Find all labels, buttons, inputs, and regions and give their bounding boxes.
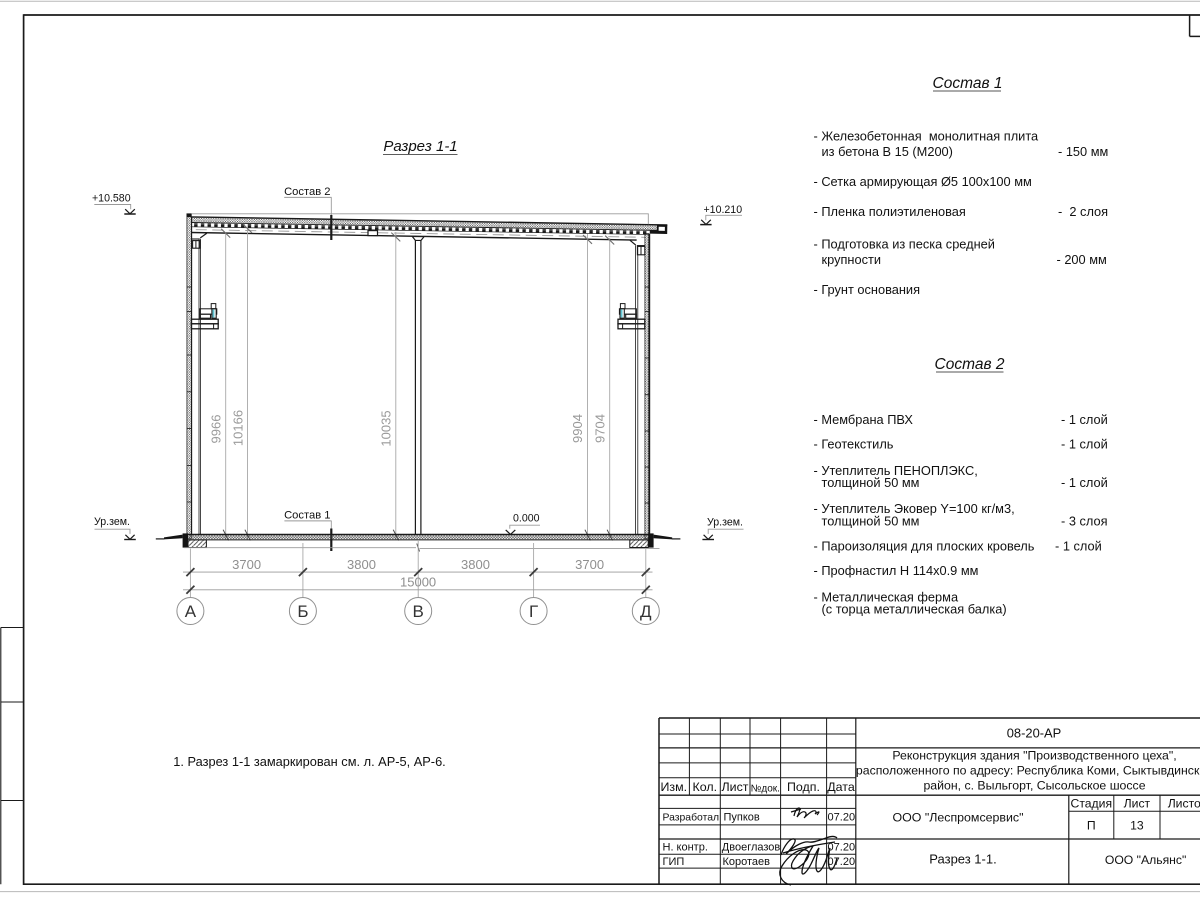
svg-text:+10.210: +10.210 [704, 204, 743, 216]
svg-text:- 1 слой: - 1 слой [1061, 475, 1108, 490]
svg-text:Н. контр.: Н. контр. [663, 842, 708, 854]
svg-text:- Профнастил Н 114х0.9 мм: - Профнастил Н 114х0.9 мм [814, 563, 979, 578]
svg-text:3700: 3700 [232, 557, 261, 572]
svg-text:9904: 9904 [570, 414, 585, 443]
svg-text:Лист: Лист [1124, 797, 1151, 811]
svg-text:- 3 слоя: - 3 слоя [1061, 514, 1108, 529]
svg-text:Разработал: Разработал [663, 812, 720, 824]
svg-text:1. Разрез 1-1 замаркирован см.: 1. Разрез 1-1 замаркирован см. л. АР-5, … [173, 754, 445, 769]
svg-text:№док.: №док. [751, 783, 780, 794]
svg-text:0.000: 0.000 [513, 513, 540, 525]
svg-text:Г: Г [529, 602, 538, 621]
svg-text:08-20-АР: 08-20-АР [1007, 726, 1061, 741]
svg-text:07.20: 07.20 [828, 842, 856, 854]
svg-text:ООО "Леспромсервис": ООО "Леспромсервис" [892, 810, 1023, 824]
svg-text:- Пароизоляция для плоских кро: - Пароизоляция для плоских кровель [814, 539, 1035, 554]
svg-text:Состав 1: Состав 1 [284, 510, 330, 522]
svg-text:Кол.: Кол. [693, 780, 718, 794]
svg-text:- Пленка полиэтиленовая: - Пленка полиэтиленовая [814, 204, 966, 219]
svg-text:07.20: 07.20 [828, 856, 856, 868]
svg-text:- Железобетонная монолитная п: - Железобетонная монолитная плита [814, 129, 1040, 144]
svg-text:Состав 2: Состав 2 [284, 186, 330, 198]
svg-text:- Грунт основания: - Грунт основания [814, 282, 921, 297]
svg-text:Стадия: Стадия [1071, 797, 1113, 811]
svg-text:Дата: Дата [827, 780, 855, 794]
svg-text:10166: 10166 [230, 410, 245, 446]
svg-text:9966: 9966 [208, 415, 223, 444]
svg-text:13: 13 [1130, 818, 1144, 832]
svg-text:Пупков: Пупков [724, 812, 760, 824]
svg-text:+10.580: +10.580 [92, 192, 131, 204]
svg-text:Листов: Листов [1168, 797, 1200, 811]
svg-text:район, с. Выльгорт, Сысольское: район, с. Выльгорт, Сысольское шоссе [923, 778, 1145, 792]
svg-text:В: В [413, 602, 424, 621]
svg-text:- 1 слой: - 1 слой [1061, 437, 1108, 452]
svg-text:Д: Д [640, 602, 652, 621]
svg-text:- Подготовка из песка средней: - Подготовка из песка средней [814, 237, 995, 252]
svg-text:Разрез 1-1: Разрез 1-1 [383, 138, 457, 155]
svg-text:Состав 1: Состав 1 [933, 75, 1003, 92]
svg-text:Коротаев: Коротаев [723, 856, 771, 868]
svg-text:07.20: 07.20 [828, 812, 856, 824]
svg-text:толщиной 50 мм: толщиной 50 мм [822, 475, 920, 490]
svg-text:- Мембрана ПВХ: - Мембрана ПВХ [814, 412, 914, 427]
svg-text:3800: 3800 [461, 557, 490, 572]
svg-text:расположенного по адресу: Респ: расположенного по адресу: Республика Ком… [856, 764, 1200, 778]
svg-text:крупности: крупности [822, 252, 882, 267]
svg-text:15000: 15000 [400, 574, 436, 589]
svg-text:(с торца металлическая балка): (с торца металлическая балка) [822, 602, 1007, 617]
svg-text:П: П [1087, 818, 1096, 832]
svg-text:Реконструкция здания "Производ: Реконструкция здания "Производственного … [892, 749, 1176, 763]
svg-text:толщиной 50 мм: толщиной 50 мм [822, 514, 920, 529]
svg-text:- 2 слоя: - 2 слоя [1058, 204, 1108, 219]
svg-text:Состав 2: Состав 2 [935, 356, 1005, 373]
svg-text:- Геотекстиль: - Геотекстиль [814, 437, 894, 452]
svg-text:из бетона В 15 (М200): из бетона В 15 (М200) [822, 144, 953, 159]
svg-text:А: А [185, 602, 197, 621]
svg-text:Изм.: Изм. [661, 780, 688, 794]
svg-text:3700: 3700 [575, 557, 604, 572]
svg-text:- 150 мм: - 150 мм [1058, 144, 1108, 159]
svg-text:- Сетка армирующая Ø5 100х100: - Сетка армирующая Ø5 100х100 мм [814, 174, 1032, 189]
svg-text:- 200 мм: - 200 мм [1057, 252, 1107, 267]
svg-text:Подп.: Подп. [787, 780, 820, 794]
svg-text:ООО "Альянс": ООО "Альянс" [1105, 853, 1187, 867]
svg-text:Двоеглазов: Двоеглазов [722, 842, 781, 854]
svg-text:- 1 слой: - 1 слой [1061, 412, 1108, 427]
svg-text:Б: Б [297, 602, 308, 621]
svg-text:10035: 10035 [378, 410, 393, 446]
svg-text:Разрез 1-1.: Разрез 1-1. [929, 852, 996, 867]
svg-text:3800: 3800 [347, 557, 376, 572]
svg-text:Ур.зем.: Ур.зем. [707, 516, 743, 528]
svg-text:Ур.зем.: Ур.зем. [94, 516, 130, 528]
svg-text:Лист: Лист [722, 780, 749, 794]
svg-text:ГИП: ГИП [663, 856, 685, 868]
svg-text:9704: 9704 [592, 414, 607, 443]
svg-text:- 1 слой: - 1 слой [1055, 539, 1102, 554]
